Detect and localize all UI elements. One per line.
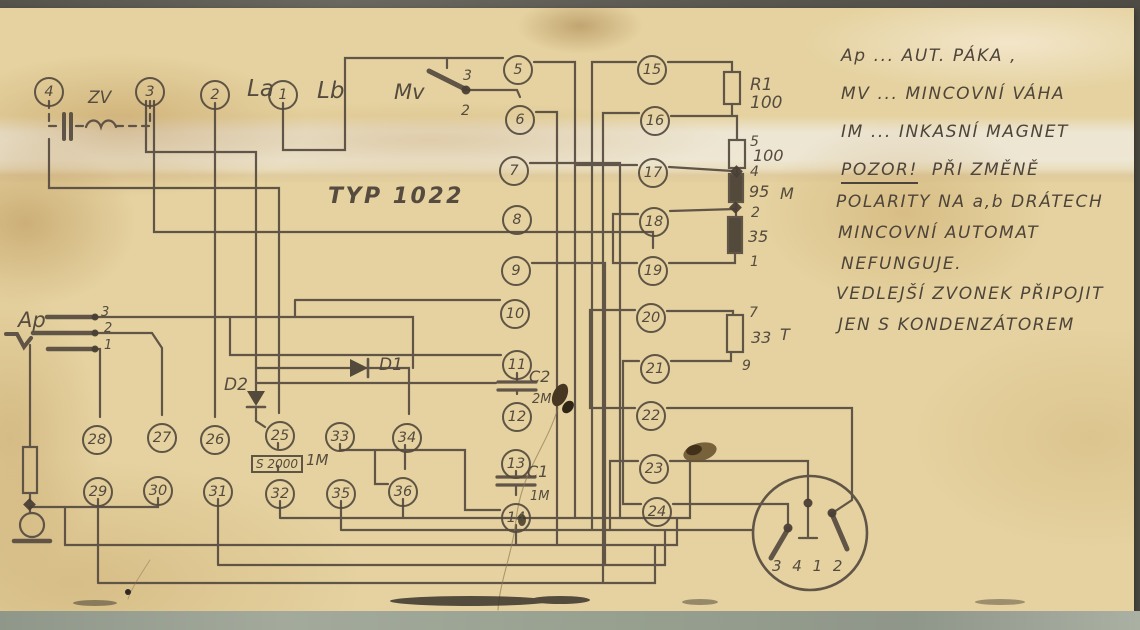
terminal-2: 2 [200,80,230,110]
label-connector-pins: 3 4 1 2 [772,559,845,574]
label-c2-name: C2 [529,369,550,385]
note-line-1: Ap ... AUT. PÁKA , [841,48,1017,65]
note-line-4: POZOR! PŘI ZMĚNĚ [841,162,1039,179]
terminal-8: 8 [502,205,532,235]
label-t-tap-7: 7 [749,306,758,320]
label-chain-m: M [780,186,794,202]
mv-switch-lever-icon [429,71,465,89]
terminal-3: 3 [135,77,165,107]
label-chain-r95: 95 [749,184,769,200]
label-zv: ZV [88,90,111,107]
label-ap-contact-2: 2 [104,322,112,335]
label-d2: D2 [224,377,248,394]
terminal-15: 15 [637,55,667,85]
label-s2000-value: 1M [306,453,329,468]
terminal-22: 22 [636,401,666,431]
ap-lever-icon [6,334,31,347]
terminal-11: 11 [502,350,532,380]
note-line-7: NEFUNGUJE. [841,256,962,273]
note-line-2: MV ... MINCOVNÍ VÁHA [841,86,1065,103]
terminal-21: 21 [640,354,670,384]
label-t-tap-9: 9 [742,359,751,373]
label-la: La [247,78,274,101]
resistor-100-icon [729,140,745,168]
terminal-36: 36 [388,477,418,507]
terminal-26: 26 [200,425,230,455]
resistor-33-icon [727,315,743,352]
resistor-bl-icon [23,447,37,493]
label-r1-name: R1 [750,77,773,94]
label-chain-r100: 100 [753,148,784,164]
label-mv: Mv [394,82,425,103]
diode-d1-icon [350,359,368,377]
note-warning-rest: PŘI ZMĚNĚ [918,160,1039,180]
terminal-4: 4 [34,77,64,107]
label-ap: Ap [18,310,46,331]
terminal-12: 12 [502,402,532,432]
terminal-10: 10 [500,299,530,329]
label-mv-contact-bottom: 2 [461,104,470,118]
terminal-24: 24 [642,497,672,527]
terminal-32: 32 [265,479,295,509]
terminal-18: 18 [639,207,669,237]
type-label: TYP 1022 [328,186,464,208]
note-line-9: JEN S KONDENZÁTOREM [838,317,1075,334]
label-c1-name: C1 [527,464,548,480]
terminal-25: 25 [265,421,295,451]
table-surface [0,611,1140,630]
terminal-29: 29 [83,477,113,507]
photo-of-schematic: 1234567891011121314151617181920212223242… [0,0,1140,630]
terminal-33: 33 [325,422,355,452]
terminal-17: 17 [638,158,668,188]
terminal-34: 34 [392,423,422,453]
label-chain-tap-4: 4 [750,165,759,179]
label-c2-value: 2M [532,393,552,406]
terminal-30: 30 [143,476,173,506]
label-chain-tap-1: 1 [750,255,759,269]
terminal-16: 16 [640,106,670,136]
terminal-14: 14 [501,503,531,533]
note-line-6: MINCOVNÍ AUTOMAT [838,225,1039,242]
terminal-28: 28 [82,425,112,455]
note-line-8: VEDLEJŠÍ ZVONEK PŘIPOJIT [836,286,1104,303]
terminal-35: 35 [326,479,356,509]
terminal-7: 7 [499,156,529,186]
terminal-5: 5 [503,55,533,85]
label-c1-value: 1M [530,490,550,503]
note-line-3: IM ... INKASNÍ MAGNET [841,124,1069,141]
resistor-r1-icon [724,72,740,104]
label-ap-contact-3: 3 [101,306,109,319]
terminal-19: 19 [638,256,668,286]
label-lb: Lb [317,80,344,103]
terminal-23: 23 [639,454,669,484]
capacitor-icon [64,114,71,139]
label-d1: D1 [379,357,403,374]
label-s2000: S 2000 [251,455,303,473]
label-r1-value: 100 [750,95,782,112]
label-mv-contact-top: 3 [463,69,472,83]
label-t-r33: 33 [751,330,771,346]
note-line-5: POLARITY NA a,b DRÁTECH [836,194,1103,211]
terminal-20: 20 [636,303,666,333]
paper-bottom-edge [73,596,1025,606]
resistor-95-icon [729,174,743,202]
label-chain-r35: 35 [748,229,768,245]
note-warning-head: POZOR! [841,160,918,184]
terminal-6: 6 [505,105,535,135]
schematic-paper: 1234567891011121314151617181920212223242… [0,8,1134,612]
terminal-27: 27 [147,423,177,453]
terminal-31: 31 [203,477,233,507]
diode-d2-icon [247,391,265,406]
label-ap-contact-1: 1 [104,339,112,352]
resistor-35-icon [728,217,742,253]
label-t-letter: T [780,327,790,343]
bell-coil-icon [86,120,116,127]
label-chain-tap-2: 2 [751,206,760,220]
terminal-9: 9 [501,256,531,286]
receiver-icon [20,513,44,537]
